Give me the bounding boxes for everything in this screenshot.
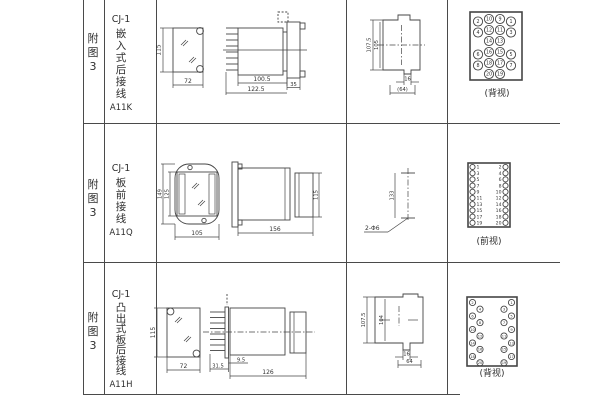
- dim-label: 133: [390, 191, 396, 201]
- grid-line: [83, 394, 460, 395]
- dim-label: 9.5: [237, 358, 245, 364]
- dim-label: 149: [158, 189, 164, 199]
- dim-label: 35: [290, 82, 297, 88]
- dim-label: 16: [403, 352, 410, 358]
- terminal-pin: [470, 208, 475, 213]
- terminal-number: 13: [477, 202, 483, 208]
- model-name: CJ-1: [106, 14, 136, 25]
- dim-label: 16: [404, 77, 411, 83]
- terminal-comb: [210, 312, 225, 351]
- terminal-number: 6: [471, 314, 474, 318]
- dim-label: 72: [184, 78, 192, 85]
- terminal-number: 3: [477, 171, 480, 177]
- drawing-sheet: 附图3 CJ-1 嵌入式后接线 A11K 115 72 10: [0, 0, 600, 400]
- terminal-pin: [503, 177, 508, 182]
- terminal-pin: [470, 220, 475, 225]
- terminal-number: 8: [479, 321, 482, 325]
- dim-label: 31.5: [212, 364, 224, 370]
- terminal-pin: [503, 171, 508, 176]
- terminal-pin: [470, 214, 475, 219]
- dim-label: 104: [379, 314, 385, 325]
- type-code: A11H: [106, 380, 136, 390]
- dim-label: 107.5: [361, 313, 367, 328]
- terminal-number: 17: [477, 214, 483, 220]
- model-name: CJ-1: [106, 163, 136, 174]
- hole-spec-label: 2-Φ6: [365, 225, 380, 232]
- panel-outline-flush: 107.5 105 16 (64): [358, 5, 458, 110]
- terminal-number: 19: [477, 221, 483, 227]
- terminal-number: 1: [477, 165, 480, 171]
- terminal-number: 13: [497, 39, 503, 45]
- grid-line: [104, 0, 105, 394]
- terminal-number: 10: [470, 328, 475, 332]
- mounting-hole: [193, 350, 200, 357]
- terminal-number: 20: [486, 72, 492, 78]
- terminal-number: 6: [499, 177, 502, 183]
- terminal-number: 8: [476, 63, 479, 69]
- terminal-number: 18: [470, 355, 475, 359]
- terminal-pin: [503, 183, 508, 188]
- relay-type-label: CJ-1 凸出式板后接线 A11H: [106, 289, 136, 390]
- terminal-number: 12: [486, 28, 492, 34]
- terminal-number: 11: [502, 334, 507, 338]
- type-code: A11K: [106, 103, 136, 113]
- terminal-number: 15: [502, 348, 507, 352]
- view-caption: (背视): [467, 86, 527, 99]
- terminal-number: 19: [502, 361, 507, 365]
- dim-label: 115: [156, 44, 163, 56]
- dim-label: 105: [374, 40, 380, 50]
- grid-line: [83, 262, 560, 263]
- terminal-number: 5: [477, 177, 480, 183]
- terminal-pin: [503, 214, 508, 219]
- terminal-pin: [470, 177, 475, 182]
- terminal-number: 2: [476, 19, 479, 25]
- view-caption: (背视): [462, 366, 522, 379]
- terminal-number: 18: [496, 214, 502, 220]
- terminal-number: 8: [499, 183, 502, 189]
- terminal-number: 4: [476, 30, 479, 36]
- dim-label: 125: [165, 189, 171, 199]
- terminal-comb: [226, 28, 238, 70]
- terminal-number: 11: [497, 28, 503, 34]
- terminal-pin: [470, 202, 475, 207]
- dim-label: 156: [269, 226, 281, 233]
- figure-label: 附图3: [85, 32, 101, 74]
- grid-line: [346, 0, 347, 394]
- drilling-diagram: 133 2-Φ6: [358, 160, 453, 245]
- terminal-number: 7: [477, 183, 480, 189]
- figure-label: 附图3: [85, 178, 101, 220]
- panel-outline-protruding: 107.5 104 16 64: [358, 288, 453, 388]
- terminal-pin: [470, 171, 475, 176]
- terminal-number: 7: [509, 63, 512, 69]
- terminal-number: 7: [503, 321, 505, 325]
- terminal-number: 17: [497, 61, 503, 67]
- terminal-pin: [503, 164, 508, 169]
- terminal-pin: [503, 202, 508, 207]
- dim-label: 64: [406, 359, 413, 365]
- figure-label: 附图3: [85, 311, 101, 353]
- view-caption: (前视): [459, 234, 519, 247]
- terminal-pin: [470, 183, 475, 188]
- dim-label: 107.5: [367, 38, 373, 53]
- terminal-number: 15: [477, 208, 483, 214]
- cutout-drawing-flush: 115 72: [150, 8, 228, 108]
- grid-line: [83, 0, 84, 394]
- terminal-number: 20: [496, 221, 502, 227]
- terminal-number: 12: [496, 196, 502, 202]
- terminal-number: 18: [486, 61, 492, 67]
- type-code: A11Q: [106, 228, 136, 238]
- terminal-number: 9: [510, 328, 513, 332]
- grid-line: [83, 123, 560, 124]
- side-view-protruding: 9.5 31.5 126: [203, 288, 321, 388]
- dim-label: 72: [180, 363, 188, 370]
- terminal-pin: [503, 220, 508, 225]
- terminal-number: 6: [476, 52, 479, 58]
- terminal-number: 15: [497, 50, 503, 56]
- dim-label: 115: [150, 327, 157, 339]
- terminal-pin: [503, 195, 508, 200]
- terminal-number: 9: [498, 17, 501, 23]
- terminal-number: 11: [477, 196, 483, 202]
- terminal-number: 1: [509, 19, 512, 25]
- terminal-pin: [503, 208, 508, 213]
- terminal-number: 14: [470, 341, 475, 345]
- mounting-type: 嵌入式后接线: [115, 28, 128, 100]
- side-view-flush: 100.5 35 122.5: [220, 2, 315, 107]
- terminal-number: 12: [478, 334, 483, 338]
- terminal-number: 5: [510, 314, 512, 318]
- terminal-pin: [503, 189, 508, 194]
- terminal-number: 1: [510, 301, 512, 305]
- mounting-type: 板前接线: [115, 177, 128, 225]
- terminal-number: 19: [497, 72, 503, 78]
- side-view-board: 156 115: [228, 158, 328, 250]
- terminal-number: 20: [478, 361, 483, 365]
- terminal-number: 16: [496, 208, 502, 214]
- terminal-number: 16: [478, 348, 483, 352]
- terminal-number: 14: [496, 202, 502, 208]
- terminal-pin: [470, 164, 475, 169]
- terminal-number: 10: [496, 190, 502, 196]
- terminal-number: 3: [509, 30, 512, 36]
- terminal-number: 3: [503, 307, 505, 311]
- mounting-hole: [197, 66, 204, 73]
- terminal-pin: [470, 195, 475, 200]
- dim-label: 105: [191, 230, 203, 237]
- handle-dashed: [278, 12, 288, 22]
- terminal-number: 9: [477, 190, 480, 196]
- model-name: CJ-1: [106, 289, 136, 300]
- terminal-number: 2: [471, 301, 473, 305]
- terminal-number: 2: [499, 165, 502, 171]
- mounting-hole: [167, 308, 174, 315]
- terminal-number: 13: [509, 341, 514, 345]
- mounting-hole: [197, 28, 204, 35]
- relay-type-label: CJ-1 嵌入式后接线 A11K: [106, 14, 136, 113]
- dim-label: (64): [397, 87, 408, 93]
- dim-label: 122.5: [247, 86, 264, 93]
- terminal-number: 10: [486, 17, 492, 23]
- terminal-number: 17: [509, 355, 514, 359]
- terminal-pin: [470, 189, 475, 194]
- dim-label: 100.5: [253, 76, 270, 83]
- mounting-type: 凸出式板后接线: [115, 303, 128, 377]
- terminal-number: 4: [499, 171, 502, 177]
- terminal-number: 4: [479, 307, 482, 311]
- relay-type-label: CJ-1 板前接线 A11Q: [106, 163, 136, 238]
- terminal-number: 5: [509, 52, 512, 58]
- dim-label: 126: [262, 369, 274, 376]
- terminal-number: 14: [486, 39, 492, 45]
- terminal-number: 16: [486, 50, 492, 56]
- dim-label: 115: [314, 190, 320, 200]
